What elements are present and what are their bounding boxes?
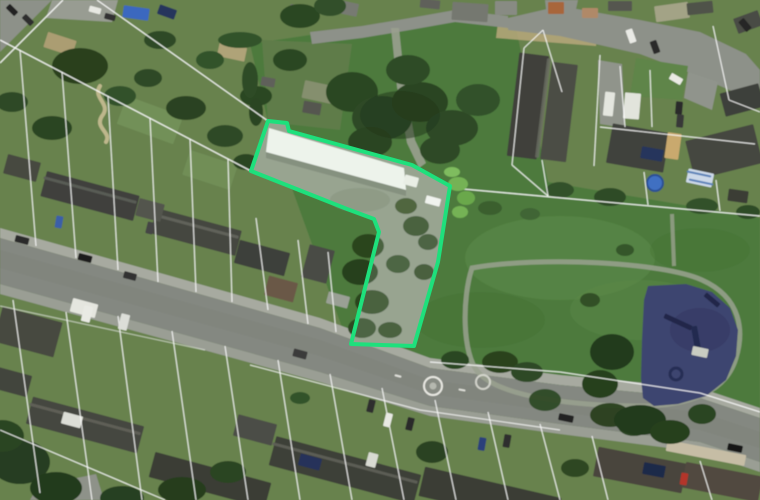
house-roof — [608, 1, 632, 11]
tree — [582, 370, 618, 398]
tree — [650, 420, 690, 444]
field-dark-patch — [650, 228, 750, 272]
tree — [210, 461, 246, 483]
car-dark — [676, 114, 684, 128]
hedge — [242, 62, 258, 98]
tree — [529, 389, 561, 411]
tree — [386, 55, 430, 85]
tree — [280, 4, 320, 28]
house-roof-light — [495, 1, 517, 15]
tree — [561, 459, 589, 477]
satellite-image — [0, 0, 760, 500]
hedge — [546, 182, 574, 198]
tree — [207, 125, 243, 147]
tree — [134, 69, 162, 87]
tree — [511, 362, 543, 382]
bush-bright — [444, 167, 460, 177]
tree — [456, 84, 500, 116]
tree — [420, 136, 460, 164]
tree — [166, 96, 206, 120]
tree — [688, 404, 716, 424]
trampoline — [647, 175, 663, 191]
bush — [478, 201, 502, 215]
tree-shadow — [360, 91, 440, 139]
field-dark-patch — [415, 292, 545, 348]
tree — [441, 351, 469, 369]
bush — [580, 293, 600, 307]
hedge — [736, 205, 760, 219]
house-white-tower — [623, 92, 641, 119]
park-spur-path — [672, 214, 674, 266]
bush — [616, 244, 634, 256]
tree — [273, 49, 307, 71]
house-roof-light — [451, 2, 488, 22]
house-roof-orange — [548, 2, 564, 14]
bush-bright — [452, 206, 468, 218]
bush — [290, 392, 310, 404]
mini-roundabout-center — [430, 383, 437, 390]
house-roof-orange — [582, 8, 598, 18]
hedge — [218, 32, 262, 48]
tree — [144, 31, 176, 49]
tree — [590, 334, 634, 370]
bush — [520, 208, 540, 220]
car-dark — [675, 101, 683, 115]
tree — [52, 48, 108, 84]
bush-bright — [457, 191, 475, 205]
tree — [196, 51, 224, 69]
aerial-screenshot — [0, 0, 760, 500]
tree — [416, 441, 448, 463]
